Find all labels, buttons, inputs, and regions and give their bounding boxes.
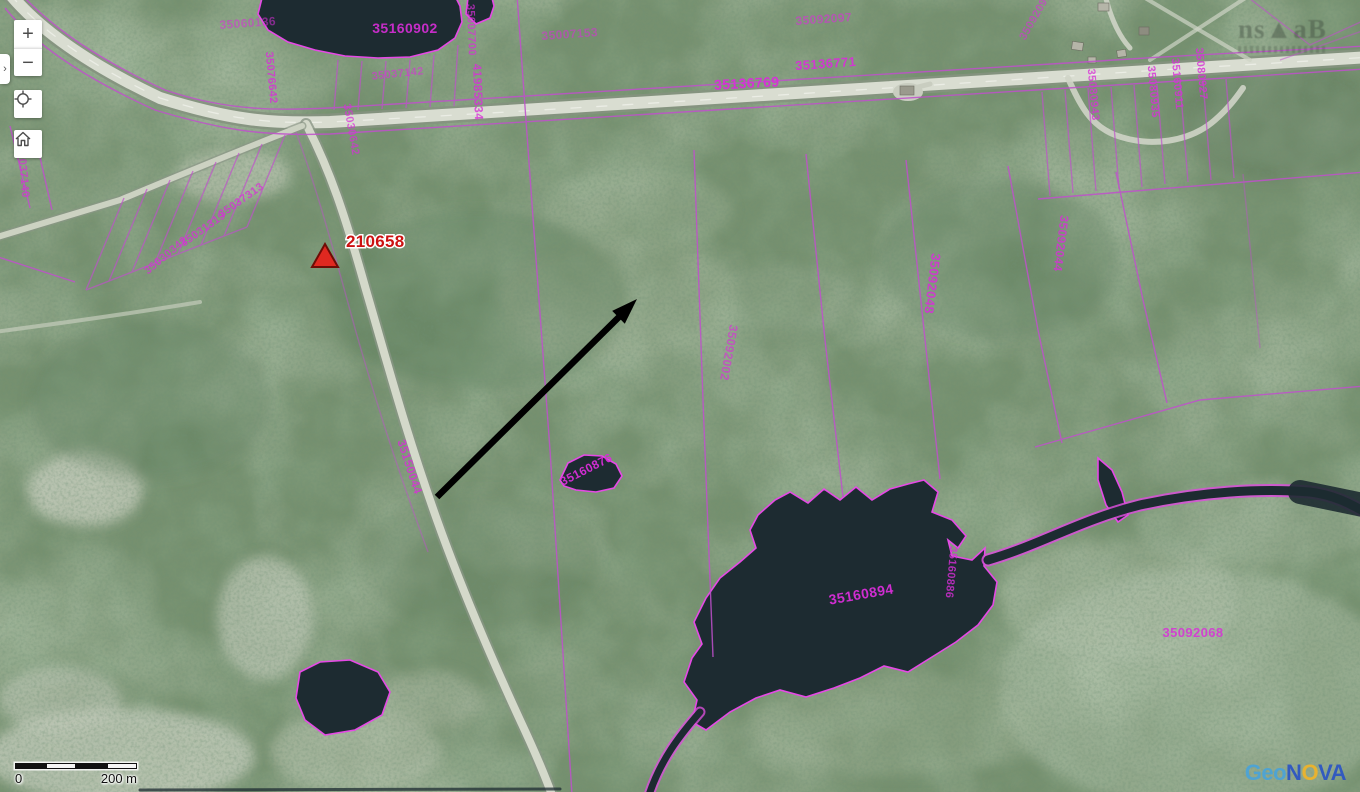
- geonova-logo: GeoNOVA: [1245, 760, 1346, 786]
- home-icon: [14, 130, 32, 148]
- watermark-text: ns▲aB: [1238, 14, 1327, 44]
- home-button[interactable]: [14, 130, 42, 158]
- minus-icon: −: [22, 53, 34, 73]
- scalebar-segments: [15, 763, 137, 769]
- crosshair-icon: [14, 90, 32, 108]
- marker-label: 210658: [346, 232, 405, 251]
- parcel-label: 35092068: [1162, 625, 1223, 640]
- map-viewport[interactable]: 3516090235136769351367713509209735007153…: [0, 0, 1360, 792]
- map-canvas: 3516090235136769351367713509209735007153…: [0, 0, 1360, 792]
- parcel-label: 35136769: [714, 73, 780, 92]
- scalebar-end-label: 200 m: [101, 771, 137, 786]
- parcel-label: 35160902: [372, 20, 438, 36]
- zoom-out-button[interactable]: −: [14, 48, 42, 76]
- nsprd-watermark: ns▲aB: [1238, 14, 1328, 53]
- zoom-in-button[interactable]: +: [14, 20, 42, 48]
- parcel-label: 35007700: [464, 4, 478, 57]
- locate-button[interactable]: [14, 90, 42, 118]
- parcel-label: 41985334: [470, 63, 486, 120]
- scalebar: 0 200 m: [15, 763, 137, 786]
- watermark-subtext: [1238, 46, 1328, 53]
- scalebar-start-label: 0: [15, 771, 22, 786]
- chevron-right-icon: ›: [3, 63, 7, 75]
- sidebar-expand-tab[interactable]: ›: [0, 54, 10, 84]
- plus-icon: +: [22, 24, 34, 44]
